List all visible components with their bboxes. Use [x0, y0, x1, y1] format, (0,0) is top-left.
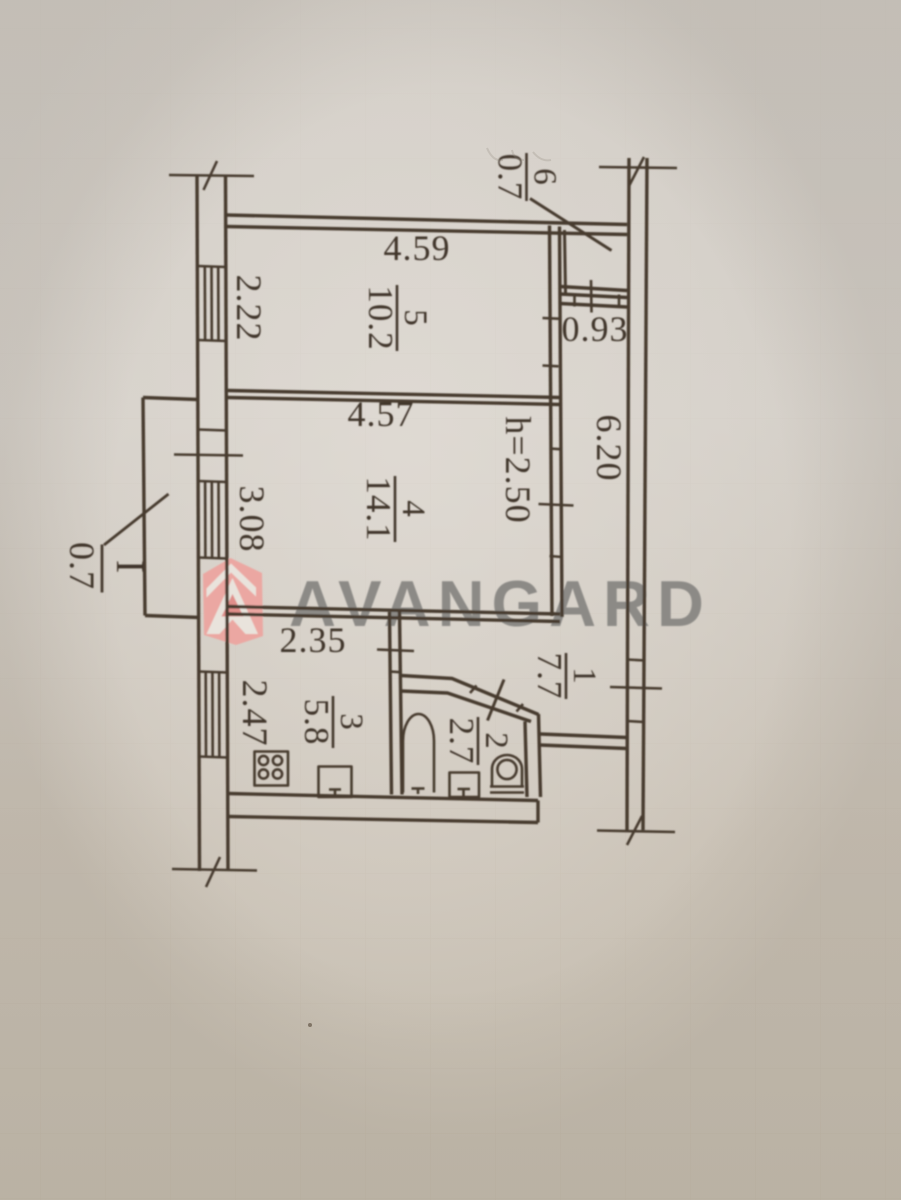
- svg-text:2.35: 2.35: [280, 620, 347, 660]
- svg-text:10.2: 10.2: [361, 285, 400, 350]
- svg-text:7.7: 7.7: [530, 653, 569, 700]
- svg-text:5: 5: [397, 309, 433, 327]
- svg-text:2: 2: [478, 732, 514, 750]
- svg-text:I: I: [108, 560, 153, 574]
- svg-text:0.7: 0.7: [62, 542, 102, 590]
- svg-text:3.08: 3.08: [232, 486, 272, 553]
- svg-text:6: 6: [527, 168, 563, 186]
- svg-text:2.7: 2.7: [442, 718, 481, 765]
- svg-text:2.22: 2.22: [229, 275, 269, 342]
- svg-text:4.59: 4.59: [384, 228, 451, 268]
- svg-text:h=2.50: h=2.50: [498, 416, 538, 523]
- svg-text:4.57: 4.57: [348, 394, 415, 434]
- svg-text:5.8: 5.8: [297, 699, 336, 746]
- svg-text:3: 3: [333, 713, 369, 731]
- svg-text:AVANGARD: AVANGARD: [289, 567, 711, 640]
- svg-text:1: 1: [566, 667, 602, 685]
- svg-text:14.1: 14.1: [359, 476, 398, 541]
- svg-text:0.93: 0.93: [562, 309, 629, 349]
- svg-text:6.20: 6.20: [589, 415, 629, 482]
- svg-text:4: 4: [395, 500, 431, 518]
- svg-text:2.47: 2.47: [235, 680, 275, 747]
